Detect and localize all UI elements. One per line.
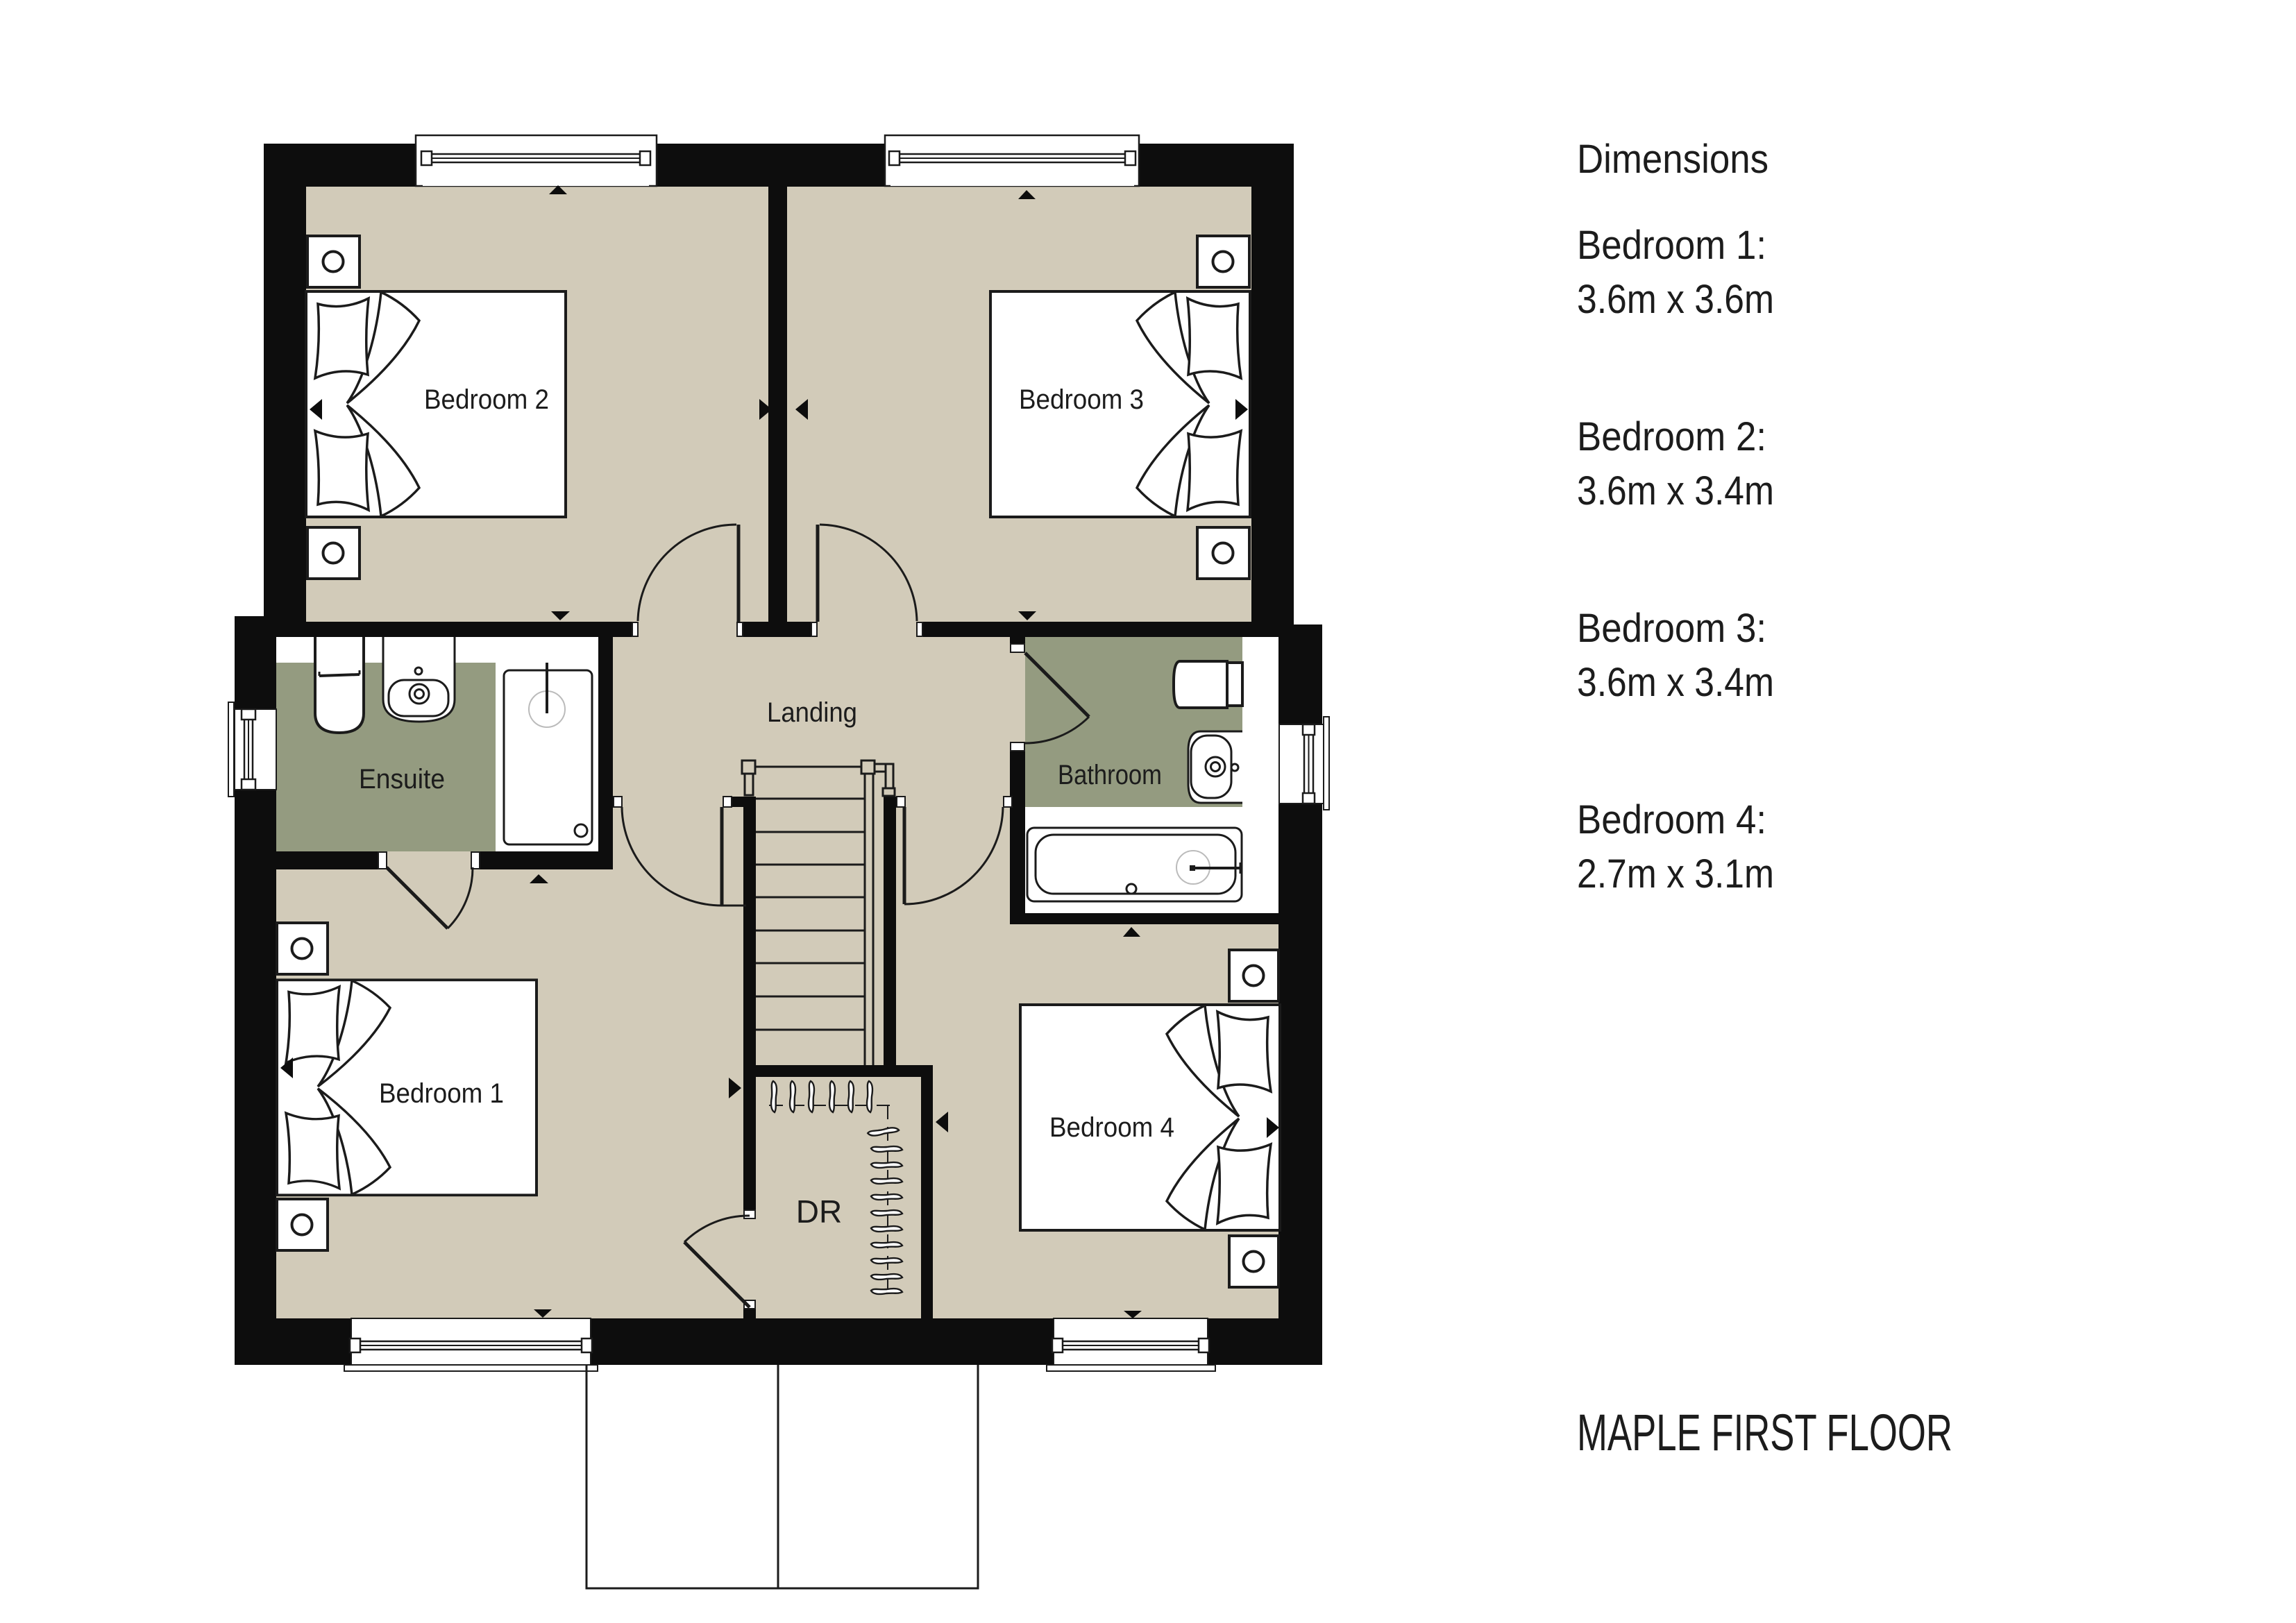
svg-text:Bedroom 1: Bedroom 1 — [379, 1078, 504, 1109]
svg-text:2.7m x 3.1m: 2.7m x 3.1m — [1577, 851, 1774, 897]
svg-text:Bedroom 4: Bedroom 4 — [1049, 1112, 1174, 1143]
svg-text:Landing: Landing — [767, 697, 857, 728]
svg-text:Bedroom 3:: Bedroom 3: — [1577, 606, 1766, 651]
svg-text:3.6m x 3.4m: 3.6m x 3.4m — [1577, 468, 1774, 513]
svg-text:Bedroom 2: Bedroom 2 — [424, 384, 549, 415]
svg-text:Ensuite: Ensuite — [359, 764, 445, 794]
svg-text:Bedroom 1:: Bedroom 1: — [1577, 223, 1766, 268]
svg-text:Bathroom: Bathroom — [1058, 760, 1162, 790]
svg-text:Bedroom 3: Bedroom 3 — [1019, 384, 1144, 415]
svg-text:Bedroom 2:: Bedroom 2: — [1577, 414, 1766, 459]
svg-text:Dimensions: Dimensions — [1577, 137, 1769, 182]
svg-text:3.6m x 3.4m: 3.6m x 3.4m — [1577, 660, 1774, 705]
svg-text:DR: DR — [796, 1193, 842, 1230]
svg-text:MAPLE FIRST FLOOR: MAPLE FIRST FLOOR — [1577, 1404, 1952, 1461]
svg-text:Bedroom 4:: Bedroom 4: — [1577, 797, 1766, 842]
svg-text:3.6m x 3.6m: 3.6m x 3.6m — [1577, 277, 1774, 322]
